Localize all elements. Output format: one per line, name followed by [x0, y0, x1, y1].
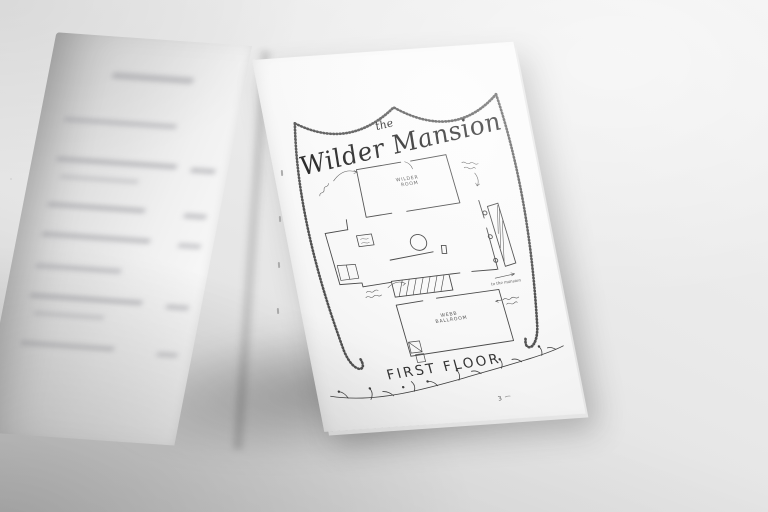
annotation-squiggle [319, 183, 329, 196]
photo-scene: the Wilder Mansion [0, 0, 768, 512]
annotation-squiggle [462, 162, 479, 169]
left-arrow [495, 300, 502, 303]
porch-ramp [480, 203, 516, 268]
page-number-flourish [505, 396, 511, 397]
stitch-mark [278, 262, 280, 268]
blurred-text-row [20, 341, 115, 352]
first-floor-caption: FIRST FLOOR [385, 351, 503, 384]
blurred-time [177, 243, 201, 249]
blurred-text-row [41, 232, 151, 244]
to-mansion-annotation: to the mansion [490, 277, 521, 286]
right-arrow [494, 273, 515, 279]
blurred-time [165, 305, 189, 311]
wilder-room-label: WILDER ROOM [395, 174, 423, 189]
blurred-text-row [63, 117, 177, 129]
stitch-mark [277, 308, 279, 314]
down-arrow [474, 173, 480, 186]
blurred-text-row [46, 202, 145, 213]
blurred-time [183, 214, 207, 220]
page-number: 3 [497, 395, 503, 402]
title-mansion: Wilder Mansion [296, 107, 506, 181]
blurred-time [156, 352, 178, 357]
dust-speck [10, 178, 12, 180]
blurred-text-row [55, 157, 177, 169]
blurred-text-row [35, 263, 122, 273]
annotation-squiggle [364, 289, 382, 298]
stitch-mark [279, 216, 281, 222]
round-table [409, 234, 429, 252]
stitch-mark [281, 170, 283, 176]
webb-ballroom-label: WEBB BALLROOM [433, 309, 468, 325]
annotation-squiggle [503, 296, 521, 305]
blurred-heading [111, 72, 194, 84]
blurred-text-row [33, 311, 104, 319]
title-group: the Wilder Mansion [289, 106, 511, 181]
elevator-box [356, 234, 374, 247]
floor-plan-walls [310, 150, 537, 370]
staircase [391, 274, 453, 297]
blurred-text-row [29, 293, 143, 305]
blurred-time [190, 168, 216, 174]
podium [441, 245, 446, 253]
blurred-text-row [60, 175, 139, 183]
